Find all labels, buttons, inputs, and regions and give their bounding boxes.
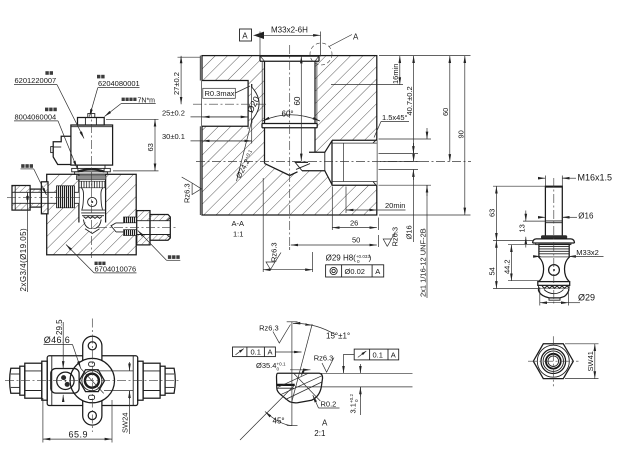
svg-text:44.2: 44.2 [503, 259, 512, 274]
svg-text:6201220007: 6201220007 [15, 76, 57, 85]
svg-text:Rz6.3: Rz6.3 [259, 324, 279, 333]
svg-text:50: 50 [352, 236, 360, 245]
svg-text:1.5x45°: 1.5x45° [382, 113, 408, 122]
svg-text:15°±1°: 15°±1° [326, 332, 350, 341]
svg-text:65.9: 65.9 [69, 430, 89, 440]
svg-text:Ø29: Ø29 [578, 293, 595, 303]
svg-text:A: A [375, 267, 380, 276]
svg-text:20min: 20min [385, 201, 405, 210]
svg-text:29.5: 29.5 [55, 319, 64, 335]
svg-text:6704010076: 6704010076 [95, 265, 137, 274]
svg-text:63: 63 [146, 143, 155, 151]
svg-text:16min: 16min [391, 64, 400, 84]
svg-text:A: A [391, 351, 396, 360]
svg-text:60°: 60° [282, 110, 294, 119]
svg-text:8004060004: 8004060004 [15, 112, 57, 121]
svg-text:M16x1.5: M16x1.5 [578, 173, 613, 183]
svg-text:R0.2: R0.2 [321, 399, 337, 408]
svg-text:M33x2: M33x2 [576, 248, 599, 257]
svg-text:0.1: 0.1 [251, 348, 261, 357]
svg-text:Rz6.3: Rz6.3 [270, 242, 279, 262]
svg-text:27±0.2: 27±0.2 [172, 72, 181, 95]
svg-text:Ø16: Ø16 [405, 225, 414, 239]
svg-text:45°: 45° [273, 417, 285, 426]
svg-text:2xG3/4(Ø19.05): 2xG3/4(Ø19.05) [19, 228, 28, 292]
svg-text:40.7±0.2: 40.7±0.2 [405, 86, 414, 115]
svg-text:2:1: 2:1 [314, 429, 326, 438]
svg-text:A: A [322, 419, 328, 428]
svg-text:Rz6.3: Rz6.3 [391, 227, 400, 247]
svg-text:2x1 1/16-12 UNF-2B: 2x1 1/16-12 UNF-2B [419, 228, 428, 297]
svg-text:A: A [268, 348, 273, 357]
svg-text:R0.3max: R0.3max [205, 89, 235, 98]
svg-text:Ø16: Ø16 [578, 212, 594, 221]
svg-text:M33x2-6H: M33x2-6H [271, 26, 308, 35]
svg-text:SW41: SW41 [586, 351, 595, 371]
svg-text:0.1: 0.1 [373, 351, 383, 360]
svg-text:A: A [353, 33, 359, 42]
svg-text:25±0.2: 25±0.2 [162, 109, 185, 118]
svg-text:Rz6.3: Rz6.3 [183, 183, 192, 203]
svg-text:13: 13 [518, 224, 527, 232]
svg-text:Ø0.02: Ø0.02 [345, 267, 365, 276]
svg-text:26: 26 [350, 219, 358, 228]
svg-text:54: 54 [488, 267, 497, 275]
svg-text:1:1: 1:1 [233, 230, 243, 239]
svg-text:SW24: SW24 [120, 413, 129, 433]
svg-text:6204080001: 6204080001 [98, 79, 140, 88]
svg-text:30±0.1: 30±0.1 [162, 132, 185, 141]
svg-text:A: A [242, 32, 248, 41]
svg-text:60: 60 [441, 108, 450, 116]
svg-text:90: 90 [457, 130, 466, 138]
svg-text:A-A: A-A [232, 219, 245, 228]
svg-text:Rz6.3: Rz6.3 [314, 354, 334, 363]
svg-text:60: 60 [293, 96, 302, 105]
svg-text:63: 63 [488, 209, 497, 217]
svg-text:Ø46.6: Ø46.6 [44, 335, 71, 345]
